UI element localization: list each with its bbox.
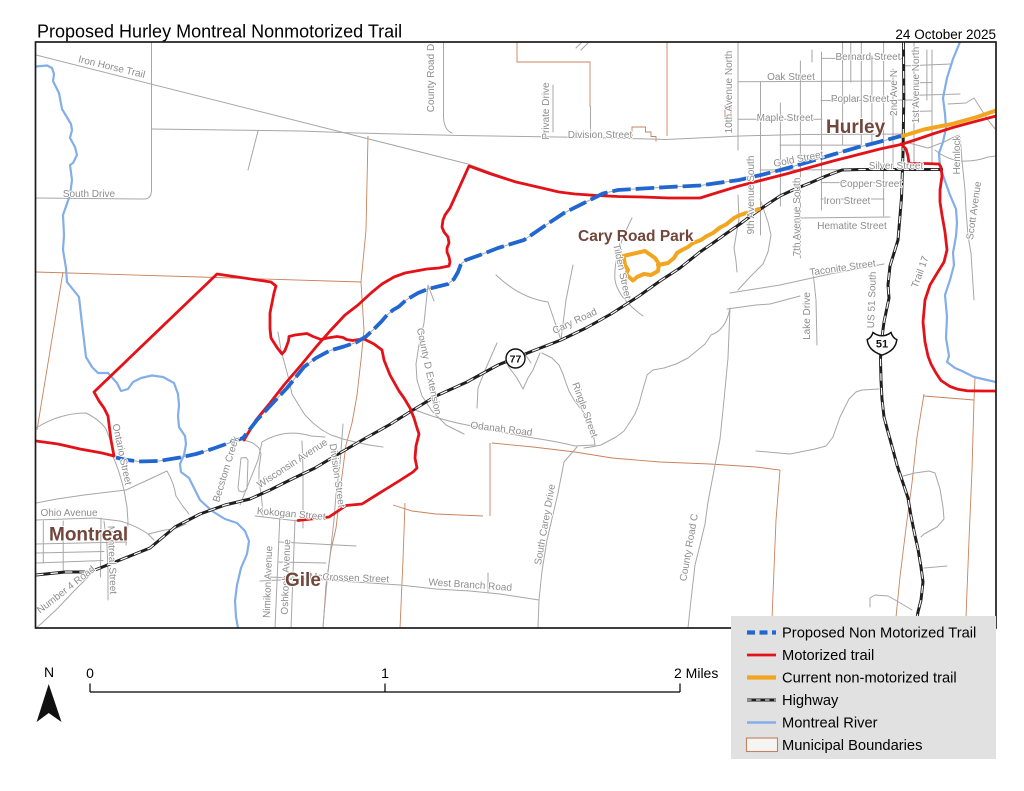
- svg-text:Hematite Street: Hematite Street: [817, 221, 887, 232]
- svg-text:Silver Street: Silver Street: [869, 161, 924, 172]
- svg-text:0: 0: [86, 665, 94, 681]
- svg-text:10th Avenue North: 10th Avenue North: [724, 51, 735, 134]
- svg-text:Poplar Street: Poplar Street: [831, 94, 890, 105]
- svg-text:Iron Street: Iron Street: [824, 196, 871, 207]
- svg-text:Highway: Highway: [782, 693, 839, 709]
- svg-text:24 October 2025: 24 October 2025: [895, 27, 996, 42]
- svg-text:Proposed Non Motorized Trail: Proposed Non Motorized Trail: [782, 626, 976, 642]
- svg-text:Municipal Boundaries: Municipal Boundaries: [782, 738, 922, 754]
- svg-text:2nd Ave N: 2nd Ave N: [889, 70, 900, 116]
- svg-text:77: 77: [510, 354, 522, 366]
- svg-text:South Drive: South Drive: [63, 189, 116, 200]
- svg-text:Gile: Gile: [285, 570, 321, 591]
- svg-text:Montreal: Montreal: [49, 525, 128, 546]
- svg-text:1: 1: [381, 665, 389, 681]
- svg-text:1st Avenue North: 1st Avenue North: [911, 47, 922, 124]
- svg-text:Copper Street: Copper Street: [840, 179, 902, 190]
- svg-text:County Road D: County Road D: [426, 44, 437, 112]
- svg-text:51: 51: [876, 339, 888, 351]
- svg-text:Hurley: Hurley: [826, 117, 886, 138]
- svg-text:Hemlock: Hemlock: [952, 135, 963, 175]
- svg-text:US 51 South: US 51 South: [866, 271, 879, 328]
- svg-text:Oak Street: Oak Street: [767, 72, 815, 83]
- svg-text:Division Street: Division Street: [568, 130, 633, 141]
- svg-text:2 Miles: 2 Miles: [674, 665, 718, 681]
- svg-text:Maple Street: Maple Street: [757, 113, 814, 124]
- svg-text:N: N: [44, 664, 54, 680]
- svg-text:Lake Drive: Lake Drive: [802, 292, 813, 340]
- svg-text:Bernard Street: Bernard Street: [835, 52, 900, 63]
- svg-text:Montreal River: Montreal River: [782, 716, 878, 732]
- svg-text:Motorized trail: Motorized trail: [782, 648, 874, 664]
- svg-text:Current non-motorized trail: Current non-motorized trail: [782, 671, 957, 687]
- svg-text:7th Avenue South: 7th Avenue South: [792, 178, 803, 257]
- svg-text:Proposed Hurley Montreal Nonmo: Proposed Hurley Montreal Nonmotorized Tr…: [37, 22, 402, 42]
- svg-text:Private Drive: Private Drive: [541, 82, 552, 140]
- svg-text:9th Avenue South: 9th Avenue South: [746, 156, 757, 235]
- svg-text:Cary Road Park: Cary Road Park: [578, 228, 694, 245]
- svg-text:Ohio Avenue: Ohio Avenue: [40, 508, 98, 519]
